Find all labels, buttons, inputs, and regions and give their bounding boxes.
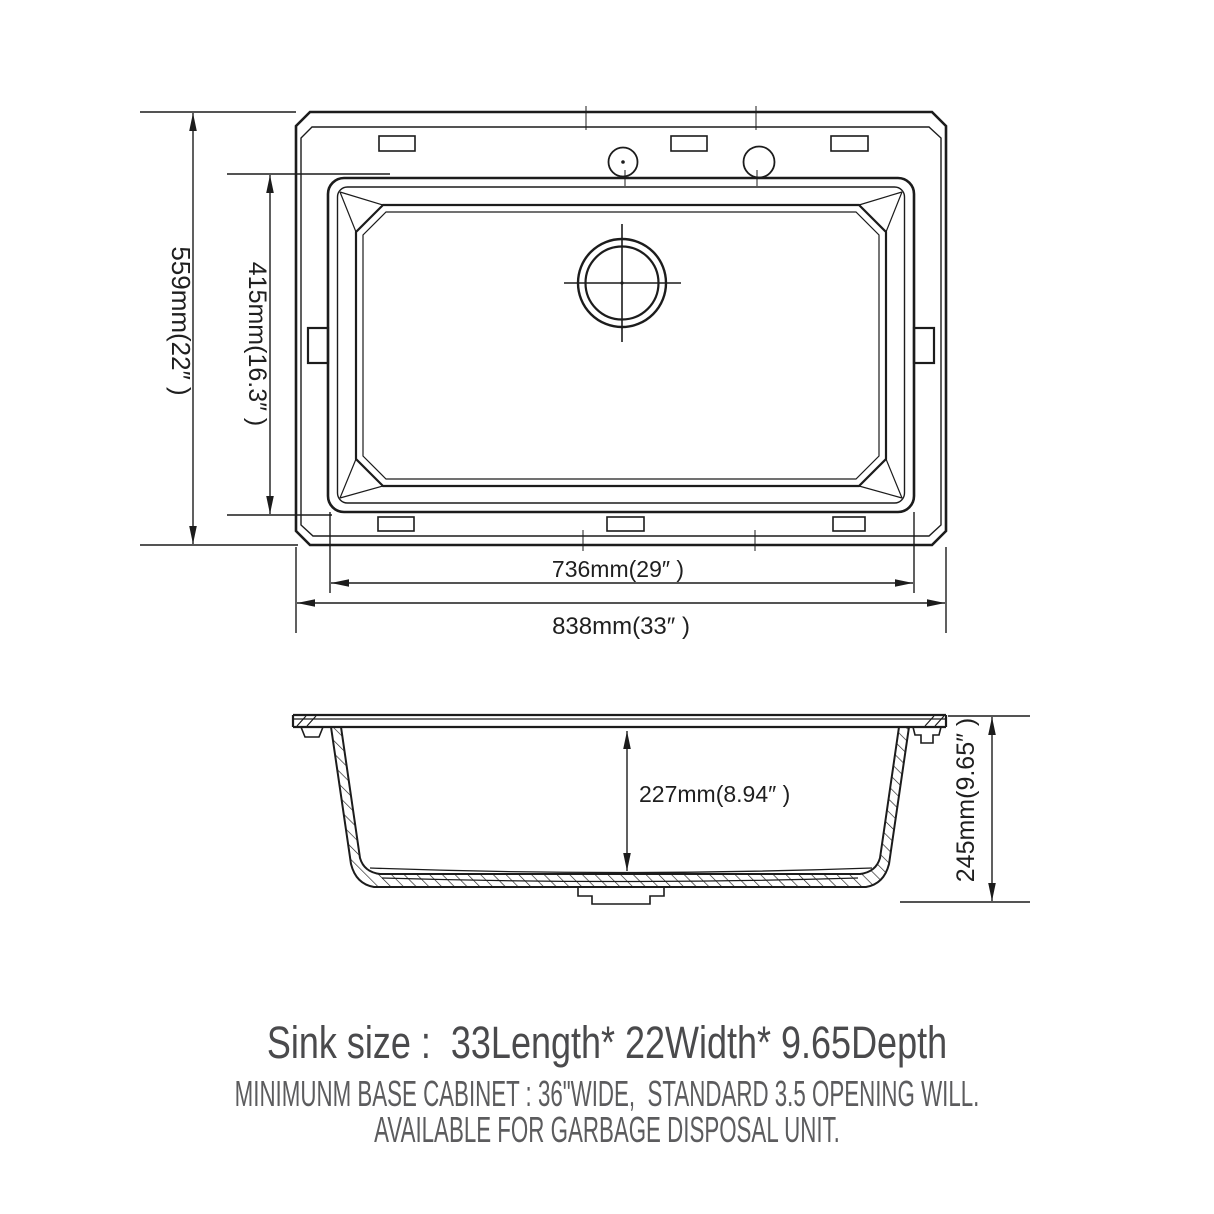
- mounting-tab: [671, 136, 707, 151]
- side-clip-left: [308, 328, 328, 363]
- caption-size-line: Sink size : 33Length* 22Width* 9.65Depth: [267, 1017, 947, 1068]
- mounting-tab: [831, 136, 868, 151]
- dim-label-overall-height: 245mm(9.65″ ): [952, 718, 980, 882]
- caption-note-line-2: AVAILABLE FOR GARBAGE DISPOSAL UNIT.: [374, 1111, 840, 1151]
- top-view: [296, 106, 946, 551]
- rim-end-hatches: [297, 716, 944, 726]
- sink-outer-inner-line: [301, 127, 941, 536]
- faucet-hole-right: [744, 147, 775, 178]
- drawing-svg: 559mm(22″ ) 415mm(16.3″ ) 736mm(29″ ) 83…: [0, 0, 1214, 1214]
- bowl-outline: [331, 727, 909, 887]
- rim-lines: [293, 715, 946, 727]
- mounting-tab: [607, 517, 644, 531]
- dim-label-basin-depth: 415mm(16.3″ ): [243, 262, 271, 426]
- side-clip-right: [914, 328, 934, 363]
- rim-left-lip: [301, 727, 323, 737]
- dim-label-inner-depth: 227mm(8.94″ ): [639, 781, 790, 807]
- basin-outer-outline: [328, 178, 914, 512]
- basin-rim-line: [338, 187, 905, 503]
- mounting-tab: [379, 136, 415, 151]
- drain-fitting: [578, 887, 664, 904]
- mounting-tab: [378, 517, 414, 531]
- caption: Sink size : 33Length* 22Width* 9.65Depth…: [235, 1017, 980, 1150]
- rim-right-clip: [913, 727, 941, 743]
- caption-note-line-1: MINIMUNM BASE CABINET : 36"WIDE, STANDAR…: [235, 1075, 980, 1115]
- sink-dimension-drawing: 559mm(22″ ) 415mm(16.3″ ) 736mm(29″ ) 83…: [0, 0, 1214, 1214]
- basin-inner-edge-2: [363, 212, 879, 479]
- centerline-ticks: [583, 106, 757, 551]
- side-view: [293, 715, 946, 904]
- dim-label-basin-width: 736mm(29″ ): [552, 556, 684, 582]
- drain: [564, 224, 681, 342]
- dim-label-overall-depth: 559mm(22″ ): [166, 246, 196, 395]
- faucet-hole-center-dot: [621, 160, 625, 164]
- section-hatch-band: [331, 727, 909, 887]
- mounting-tab: [833, 517, 865, 531]
- dim-label-overall-width: 838mm(33″ ): [552, 613, 690, 640]
